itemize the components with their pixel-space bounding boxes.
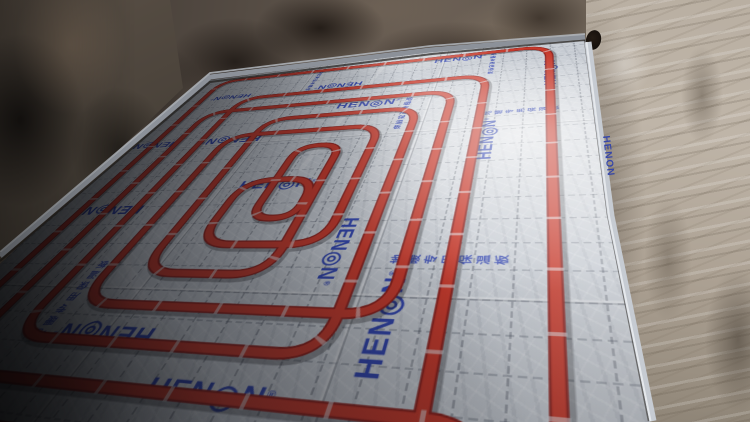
right-edge-strip	[588, 42, 653, 421]
wall-base-edge-strips: HENON	[0, 0, 750, 422]
back-baseboard-strip	[0, 37, 585, 256]
back-base-shadow-line	[0, 40, 585, 261]
photo-underfloor-heating-room: HEN◎N®地暖专用保温板HEN◎N®HEN◎N®地暖专用保温板HEN◎N®HE…	[0, 0, 750, 422]
